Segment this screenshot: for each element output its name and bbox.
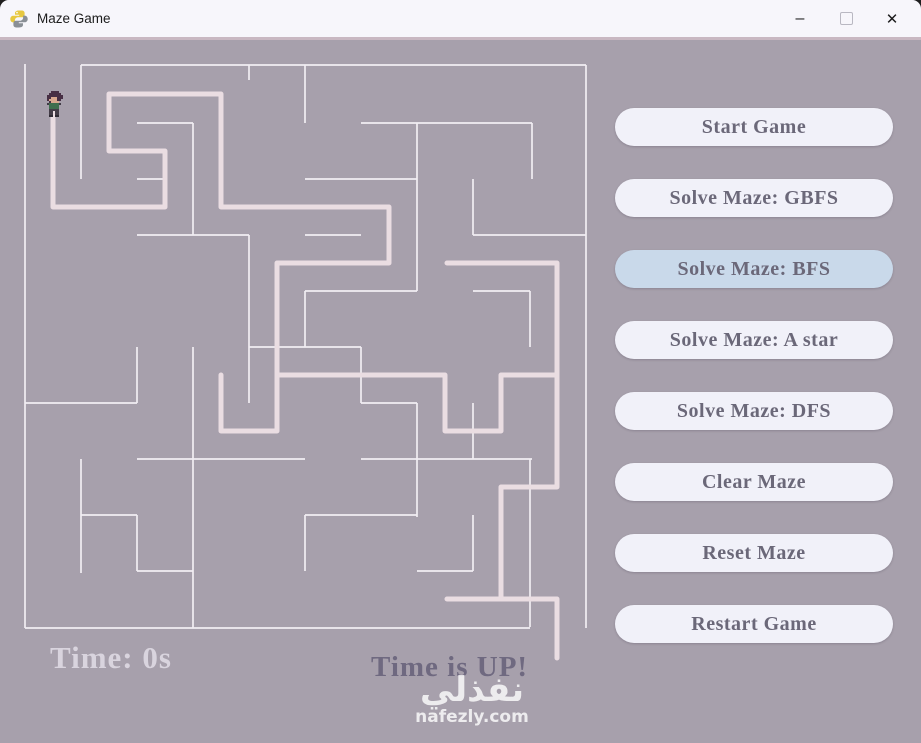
close-button[interactable]: ✕	[869, 0, 915, 37]
start-game-button[interactable]: Start Game	[615, 108, 893, 146]
maximize-icon	[840, 12, 853, 25]
watermark-domain: nafezly.com	[372, 708, 572, 726]
close-icon: ✕	[886, 10, 899, 28]
watermark: نفذلي nafezly.com	[372, 672, 572, 726]
app-window: Maze Game – ✕ Start Game Solve Maze: GBF…	[0, 0, 921, 743]
player-sprite	[47, 91, 63, 117]
restart-game-button[interactable]: Restart Game	[615, 605, 893, 643]
solve-bfs-button[interactable]: Solve Maze: BFS	[615, 250, 893, 288]
clear-maze-button[interactable]: Clear Maze	[615, 463, 893, 501]
solve-astar-button[interactable]: Solve Maze: A star	[615, 321, 893, 359]
titlebar: Maze Game – ✕	[0, 0, 921, 37]
python-icon	[9, 9, 29, 29]
timer-label: Time: 0s	[50, 640, 172, 676]
titlebar-divider	[0, 37, 921, 40]
solve-dfs-button[interactable]: Solve Maze: DFS	[615, 392, 893, 430]
minimize-button[interactable]: –	[777, 0, 823, 37]
watermark-arabic: نفذلي	[372, 672, 572, 708]
maximize-button[interactable]	[823, 0, 869, 37]
minimize-icon: –	[796, 10, 805, 28]
reset-maze-button[interactable]: Reset Maze	[615, 534, 893, 572]
window-title: Maze Game	[37, 11, 111, 26]
button-column: Start Game Solve Maze: GBFS Solve Maze: …	[615, 108, 893, 643]
solve-gbfs-button[interactable]: Solve Maze: GBFS	[615, 179, 893, 217]
